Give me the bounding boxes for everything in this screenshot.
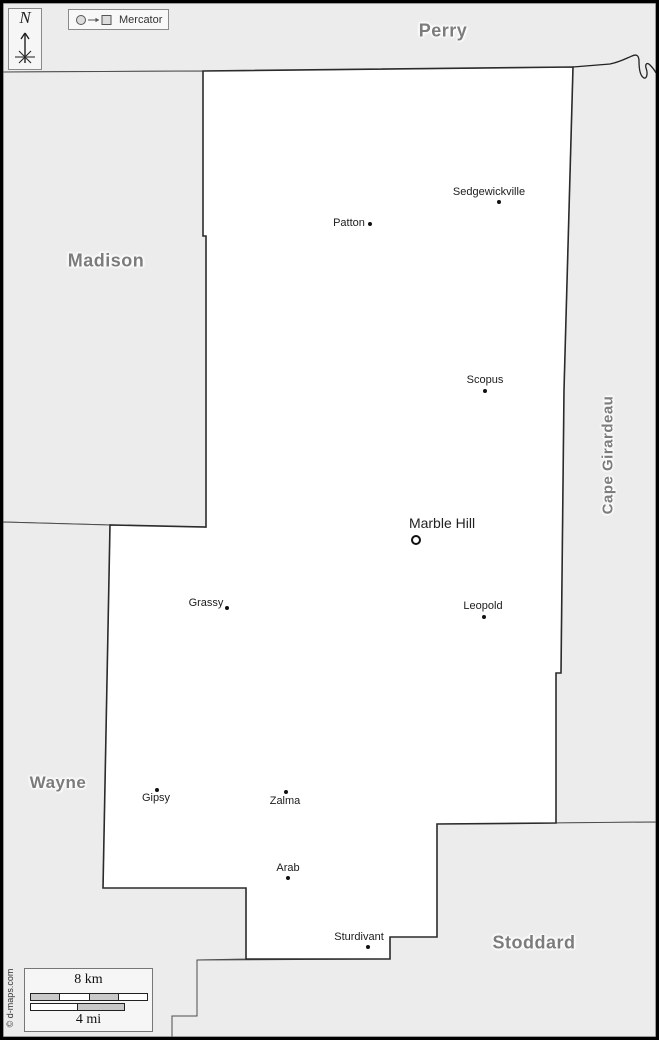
town-label-sturdivant: Sturdivant bbox=[334, 931, 384, 943]
town-label-sedgewickville: Sedgewickville bbox=[453, 186, 525, 198]
town-dot-icon bbox=[284, 790, 288, 794]
town-dot-icon bbox=[483, 389, 487, 393]
county-label-madison: Madison bbox=[68, 251, 145, 272]
town-dot-icon bbox=[368, 222, 372, 226]
scale-segment bbox=[59, 994, 88, 1000]
compass-arrow-icon bbox=[9, 27, 41, 67]
scale-bar-box: 8 km 4 mi bbox=[24, 968, 153, 1032]
compass-north-label: N bbox=[9, 9, 41, 27]
region-madison bbox=[3, 71, 206, 527]
town-dot-icon bbox=[482, 615, 486, 619]
town-dot-icon bbox=[286, 876, 290, 880]
scale-segment bbox=[89, 994, 118, 1000]
county-label-wayne: Wayne bbox=[30, 773, 87, 793]
town-dot-icon bbox=[155, 788, 159, 792]
town-dot-icon bbox=[497, 200, 501, 204]
county-label-perry: Perry bbox=[419, 21, 468, 42]
town-label-marble-hill: Marble Hill bbox=[409, 515, 475, 531]
town-label-scopus: Scopus bbox=[467, 374, 504, 386]
scale-segment bbox=[31, 994, 59, 1000]
town-label-grassy: Grassy bbox=[189, 597, 224, 609]
county-seat-ring-icon bbox=[411, 535, 421, 545]
scale-segment bbox=[77, 1004, 124, 1010]
compass-box: N bbox=[8, 8, 42, 70]
county-label-stoddard: Stoddard bbox=[493, 933, 576, 954]
county-label-cape-girardeau: Cape Girardeau bbox=[600, 396, 617, 515]
scale-km-label: 8 km bbox=[25, 972, 152, 988]
projection-name: Mercator bbox=[119, 14, 162, 26]
county-map-svg bbox=[0, 0, 659, 1040]
town-dot-icon bbox=[225, 606, 229, 610]
scale-bar-mi bbox=[30, 1003, 125, 1011]
copyright-text: © d-maps.com bbox=[5, 958, 15, 1038]
sphere-to-square-projection-icon bbox=[75, 14, 115, 26]
town-label-leopold: Leopold bbox=[463, 600, 502, 612]
town-label-gipsy: Gipsy bbox=[142, 792, 170, 804]
map-canvas: Perry Madison Wayne Stoddard Cape Girard… bbox=[0, 0, 659, 1040]
town-label-arab: Arab bbox=[276, 862, 299, 874]
town-label-zalma: Zalma bbox=[270, 795, 301, 807]
scale-segment bbox=[31, 1004, 77, 1010]
projection-legend: Mercator bbox=[68, 9, 169, 30]
scale-bar-km bbox=[30, 993, 148, 1001]
town-label-patton: Patton bbox=[333, 217, 365, 229]
town-dot-icon bbox=[366, 945, 370, 949]
scale-mi-label: 4 mi bbox=[25, 1012, 152, 1028]
scale-segment bbox=[118, 994, 147, 1000]
